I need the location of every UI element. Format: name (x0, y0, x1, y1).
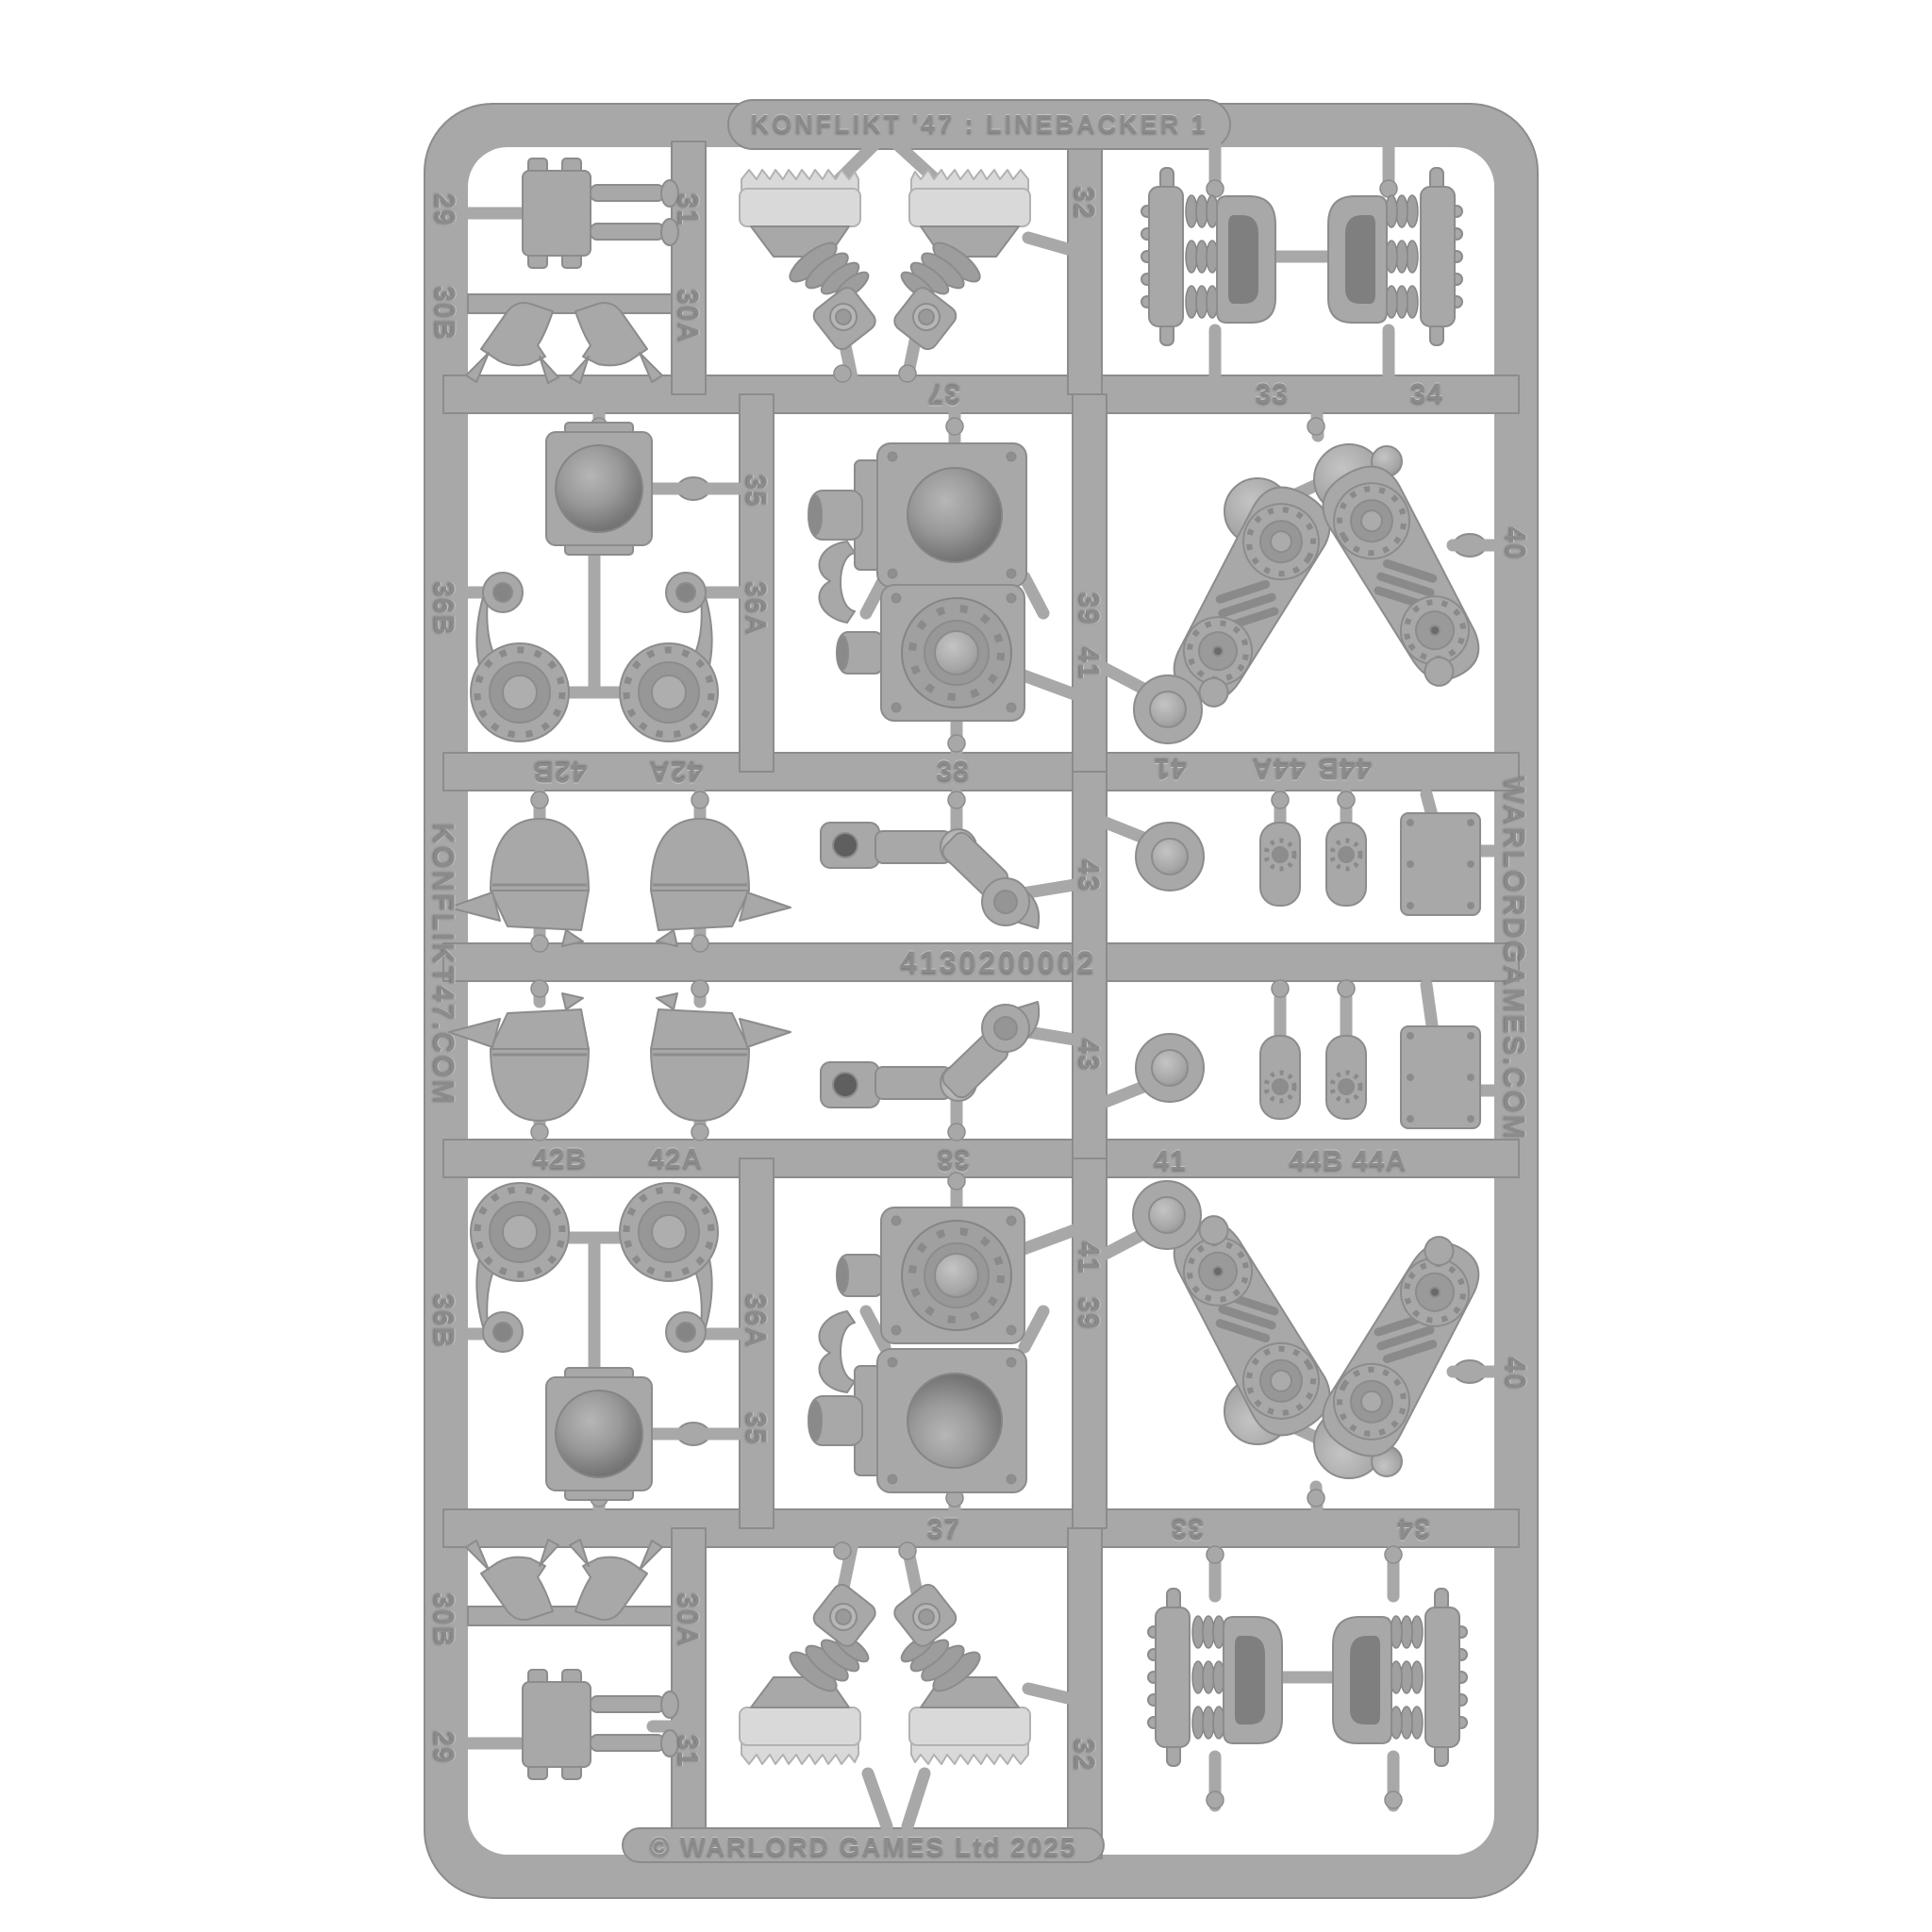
part-44A-pad (1326, 1036, 1366, 1119)
part-label-30A-top: 30A (674, 289, 702, 343)
sprue-title: KONFLIKT '47 : LINEBACKER 1 (751, 112, 1208, 138)
part-label-36B-top: 36B (429, 581, 458, 636)
sku-number: 4130200002 (900, 947, 1096, 977)
part-35-dishbox (546, 1368, 652, 1500)
part-label-42A-top: 42A (648, 758, 703, 786)
part-label-37-top: 37 (926, 380, 959, 408)
part-label-35-top: 35 (741, 474, 770, 507)
part-44-plate (1401, 1026, 1480, 1128)
part-label-34-bottom: 34 (1396, 1515, 1429, 1543)
part-44-plate (1401, 813, 1480, 915)
right-rail-url: WARLORDGAMES.COM (1501, 776, 1530, 1141)
part-label-36A-top: 36A (741, 581, 770, 636)
part-label-30B-bottom: 30B (429, 1592, 458, 1647)
copyright-text: © WARLORD GAMES Ltd 2025 (650, 1834, 1077, 1860)
part-label-39-top: 39 (1074, 591, 1103, 625)
part-label-38-top: 38 (936, 758, 969, 786)
part-label-44B-top: 44B (1317, 755, 1372, 783)
part-label-36A-bottom: 36A (741, 1293, 770, 1348)
part-label-29-top: 29 (430, 192, 458, 225)
part-41-disc (1134, 675, 1202, 743)
sprue-product-photo: KONFLIKT '47 : LINEBACKER 1 © WARLORD GA… (0, 0, 1932, 1932)
part-label-30B-top: 30B (430, 286, 458, 341)
part-label-38-bottom: 38 (936, 1146, 969, 1174)
part-label-41-bar-top: 41 (1153, 755, 1186, 783)
part-label-44A-top: 44A (1251, 755, 1306, 783)
part-41-disc (1136, 1034, 1204, 1102)
part-label-43-bottom: 43 (1074, 1038, 1103, 1071)
part-label-41-mid-bottom: 41 (1074, 1241, 1103, 1274)
part-label-33-bottom: 33 (1170, 1515, 1203, 1543)
part-label-40-top: 40 (1501, 526, 1529, 559)
part-label-31-bottom: 31 (674, 1734, 702, 1767)
part-44B-pad (1260, 1036, 1300, 1119)
part-35-dishbox (546, 423, 652, 555)
part-label-37-bottom: 37 (926, 1515, 959, 1543)
part-label-44A-bottom: 44A (1352, 1147, 1407, 1175)
part-label-31-top: 31 (674, 192, 702, 225)
part-label-44B-bottom: 44B (1289, 1147, 1343, 1175)
part-41-disc (1133, 1181, 1201, 1249)
part-label-36B-bottom: 36B (429, 1293, 458, 1348)
part-label-41-mid-top: 41 (1074, 646, 1103, 679)
part-label-43-top: 43 (1074, 858, 1103, 891)
part-label-42B-bottom: 42B (532, 1145, 587, 1174)
part-44A-pad (1260, 823, 1300, 906)
part-label-29-bottom: 29 (429, 1730, 458, 1763)
part-label-42A-bottom: 42A (648, 1145, 703, 1174)
part-label-39-bottom: 39 (1074, 1296, 1103, 1329)
part-label-41-bar-bottom: 41 (1153, 1147, 1186, 1175)
part-44B-pad (1326, 823, 1366, 906)
part-label-32-bottom: 32 (1070, 1738, 1098, 1771)
part-label-32-top: 32 (1070, 186, 1098, 219)
part-41-disc (1136, 823, 1204, 891)
part-label-33-top: 33 (1255, 380, 1288, 408)
part-label-34-top: 34 (1409, 380, 1442, 408)
part-label-40-bottom: 40 (1501, 1357, 1529, 1390)
part-label-42B-top: 42B (532, 758, 587, 786)
left-rail-url: KONFLIKT47.COM (430, 823, 459, 1106)
part-label-30A-bottom: 30A (674, 1592, 702, 1647)
part-label-35-bottom: 35 (741, 1411, 770, 1444)
